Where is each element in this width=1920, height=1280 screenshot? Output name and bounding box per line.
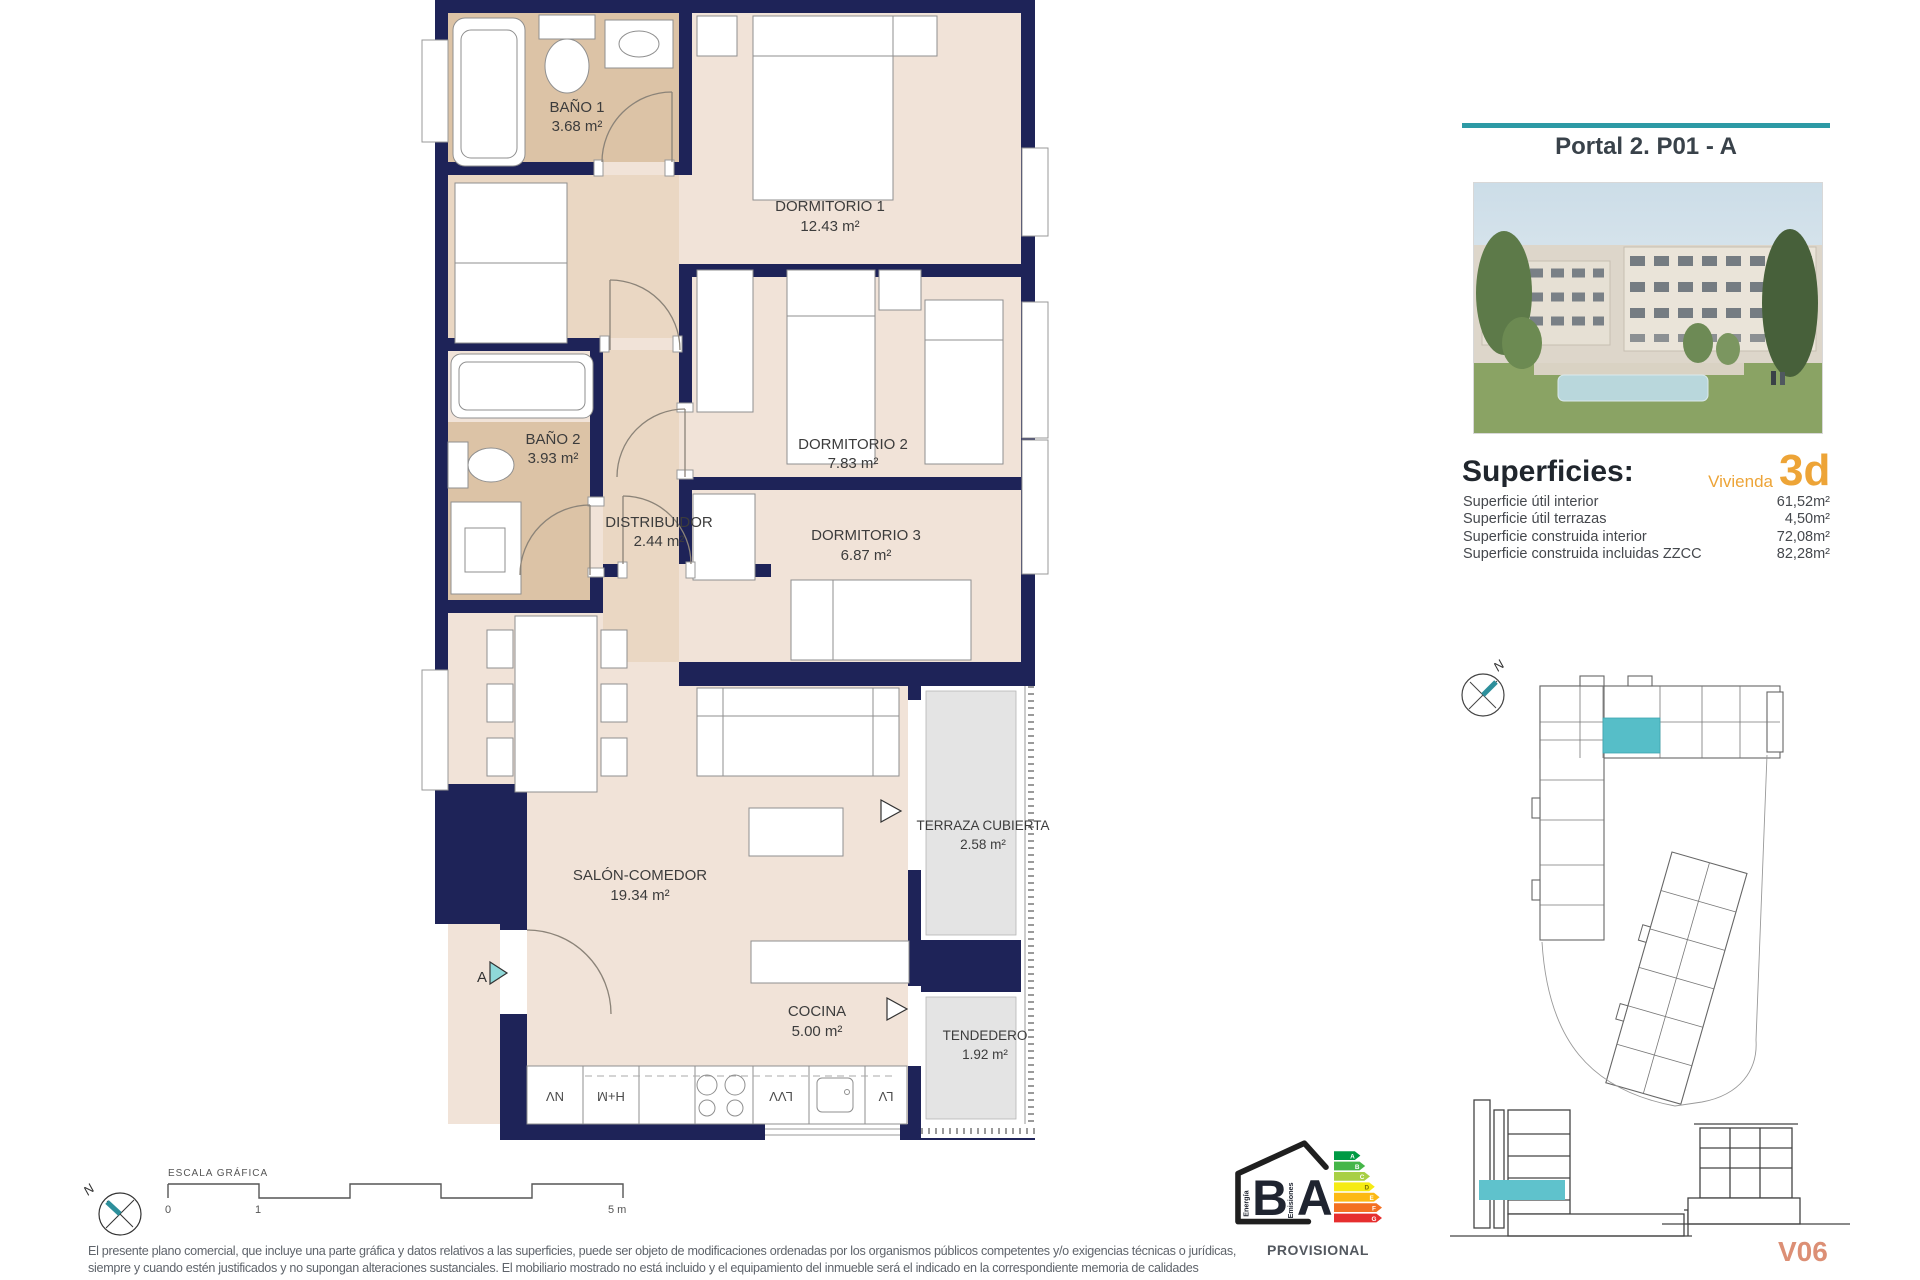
building-render-art bbox=[1474, 183, 1822, 433]
svg-text:Emisiones: Emisiones bbox=[1286, 1182, 1295, 1218]
svg-text:1: 1 bbox=[255, 1204, 261, 1216]
svg-text:D: D bbox=[1364, 1185, 1369, 1192]
section-marker-a: A bbox=[477, 969, 487, 986]
svg-text:NV: NV bbox=[546, 1089, 564, 1104]
disclaimer-line2: siempre y cuando estén justificados y no… bbox=[88, 1260, 1248, 1277]
floor-plan: BAÑO 1 3.68 m² DORMITORIO 1 12.43 m² BAÑ… bbox=[420, 0, 1050, 1140]
vivienda-type: 3d bbox=[1779, 446, 1830, 496]
svg-text:2.44 m²: 2.44 m² bbox=[634, 533, 685, 550]
svg-text:A: A bbox=[1297, 1170, 1333, 1226]
svg-text:E: E bbox=[1369, 1195, 1374, 1202]
svg-text:7.83 m²: 7.83 m² bbox=[828, 455, 879, 472]
svg-text:N: N bbox=[82, 1182, 98, 1198]
site-building-l bbox=[1532, 676, 1783, 940]
site-compass-icon: N bbox=[1462, 656, 1508, 716]
site-building-slanted bbox=[1598, 850, 1747, 1104]
section-right bbox=[1662, 1124, 1850, 1224]
svg-text:N: N bbox=[1490, 656, 1507, 674]
svg-text:H+M: H+M bbox=[597, 1089, 625, 1104]
svg-text:1.92 m²: 1.92 m² bbox=[962, 1047, 1008, 1062]
svg-text:LV: LV bbox=[878, 1089, 893, 1104]
provisional-label: PROVISIONAL bbox=[1248, 1242, 1388, 1258]
svg-text:Energía: Energía bbox=[1241, 1189, 1250, 1216]
svg-text:3.93 m²: 3.93 m² bbox=[528, 450, 579, 467]
site-plan: N bbox=[1440, 650, 1840, 1125]
svg-text:19.34 m²: 19.34 m² bbox=[610, 887, 669, 904]
label-terraza: TERRAZA CUBIERTA bbox=[916, 818, 1049, 833]
svg-text:G: G bbox=[1372, 1216, 1377, 1223]
label-dormitorio3: DORMITORIO 3 bbox=[811, 527, 921, 544]
svg-text:2.58 m²: 2.58 m² bbox=[960, 837, 1006, 852]
section-highlighted-floor bbox=[1479, 1180, 1565, 1200]
disclaimer-line1: El presente plano comercial, que incluye… bbox=[88, 1243, 1248, 1260]
label-dormitorio2: DORMITORIO 2 bbox=[798, 436, 908, 453]
energy-rating-icon: B A Energía Emisiones A B C D E F G bbox=[1222, 1140, 1382, 1244]
superficies-row: Superficie útil interior 61,52m² bbox=[1463, 494, 1830, 511]
plan-code: V06 bbox=[1778, 1236, 1828, 1268]
svg-text:C: C bbox=[1360, 1174, 1365, 1181]
svg-text:B: B bbox=[1355, 1164, 1360, 1171]
superficies-heading: Superficies: bbox=[1462, 455, 1634, 489]
svg-text:B: B bbox=[1252, 1170, 1288, 1226]
superficies-table: Superficie útil interior 61,52m² Superfi… bbox=[1463, 494, 1830, 564]
label-tendedero: TENDEDERO bbox=[943, 1028, 1028, 1043]
label-distribuidor: DISTRIBUIDOR bbox=[605, 514, 713, 531]
building-render-photo bbox=[1473, 182, 1823, 434]
page-title: Portal 2. P01 - A bbox=[1462, 133, 1830, 161]
scale-bar: ESCALA GRÁFICA 0 1 5 m bbox=[160, 1164, 650, 1220]
compass-icon: N bbox=[82, 1182, 162, 1244]
svg-text:A: A bbox=[1350, 1153, 1355, 1160]
svg-text:0: 0 bbox=[165, 1204, 171, 1216]
energy-arrows: A B C D E F G bbox=[1334, 1151, 1382, 1223]
label-salon: SALÓN-COMEDOR bbox=[573, 867, 707, 884]
label-cocina: COCINA bbox=[788, 1003, 846, 1020]
title-rule bbox=[1462, 123, 1830, 128]
superficies-row: Superficie construida incluidas ZZCC 82,… bbox=[1463, 546, 1830, 563]
label-dormitorio1: DORMITORIO 1 bbox=[775, 198, 885, 215]
svg-text:5 m: 5 m bbox=[608, 1204, 626, 1216]
site-highlighted-unit bbox=[1603, 718, 1660, 753]
section-left bbox=[1450, 1100, 1692, 1236]
svg-text:3.68 m²: 3.68 m² bbox=[552, 118, 603, 135]
vivienda-label: Vivienda bbox=[1655, 472, 1773, 492]
svg-text:ESCALA GRÁFICA: ESCALA GRÁFICA bbox=[168, 1166, 268, 1179]
svg-text:5.00 m²: 5.00 m² bbox=[792, 1023, 843, 1040]
svg-text:12.43 m²: 12.43 m² bbox=[800, 218, 859, 235]
section-drawings bbox=[1430, 1084, 1880, 1254]
svg-text:F: F bbox=[1372, 1205, 1376, 1212]
label-banio1: BAÑO 1 bbox=[549, 99, 604, 116]
svg-text:LVV: LVV bbox=[769, 1089, 793, 1104]
svg-text:6.87 m²: 6.87 m² bbox=[841, 547, 892, 564]
label-banio2: BAÑO 2 bbox=[525, 431, 580, 448]
disclaimer: El presente plano comercial, que incluye… bbox=[88, 1243, 1248, 1277]
superficies-row: Superficie construida interior 72,08m² bbox=[1463, 529, 1830, 546]
superficies-row: Superficie útil terrazas 4,50m² bbox=[1463, 511, 1830, 528]
